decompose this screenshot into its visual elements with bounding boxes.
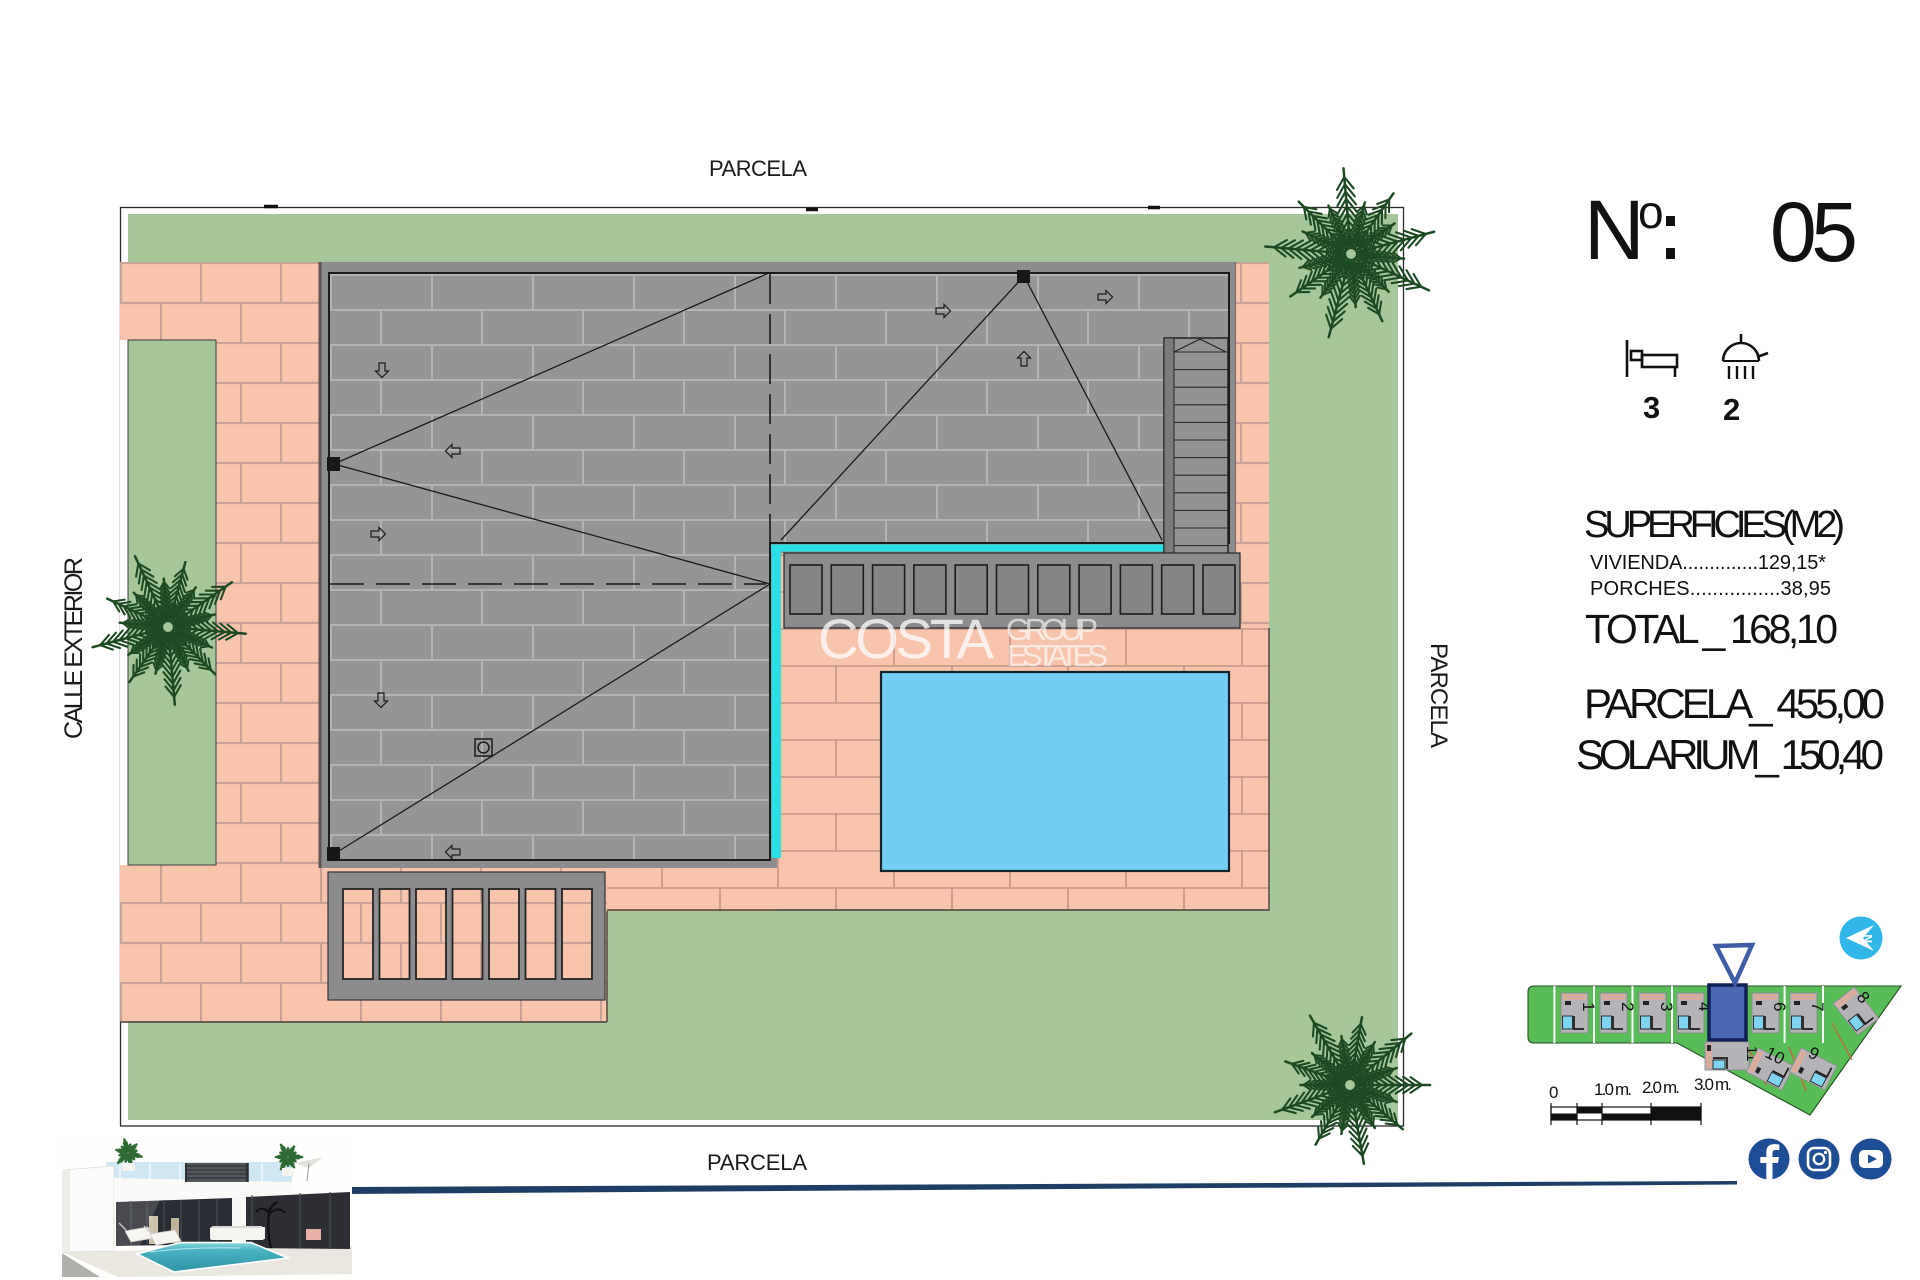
svg-text:ESTATES: ESTATES — [1007, 638, 1110, 673]
svg-text:PARCELA: PARCELA — [1425, 643, 1452, 748]
svg-text:CALLE EXTERIOR: CALLE EXTERIOR — [60, 557, 88, 739]
svg-text:SOLARIUM_ 150,40: SOLARIUM_ 150,40 — [1576, 731, 1884, 778]
svg-text:o: o — [1638, 186, 1664, 238]
svg-text:0: 0 — [1549, 1083, 1558, 1102]
svg-text:05: 05 — [1770, 185, 1858, 279]
svg-text:2: 2 — [1618, 1002, 1637, 1011]
svg-text:2: 2 — [1723, 392, 1740, 427]
svg-text:PARCELA_ 455,00: PARCELA_ 455,00 — [1584, 680, 1885, 727]
svg-text:N: N — [1584, 183, 1645, 277]
svg-text:3.0 m.: 3.0 m. — [1694, 1075, 1732, 1094]
svg-text:3: 3 — [1657, 1002, 1676, 1011]
svg-text:PORCHES................38,95: PORCHES................38,95 — [1590, 578, 1831, 600]
svg-text:PARCELA: PARCELA — [707, 1150, 807, 1175]
svg-text:6: 6 — [1770, 1002, 1789, 1011]
svg-text:COSTA: COSTA — [818, 607, 998, 670]
svg-text:1.0 m.: 1.0 m. — [1594, 1080, 1632, 1099]
svg-text:SUPERFICIES(M2): SUPERFICIES(M2) — [1584, 504, 1845, 546]
svg-text:3: 3 — [1643, 390, 1660, 425]
svg-text:1: 1 — [1579, 1002, 1598, 1011]
svg-text:N: N — [1861, 934, 1875, 943]
svg-text:PARCELA: PARCELA — [709, 156, 807, 181]
svg-text:7: 7 — [1808, 1002, 1827, 1011]
svg-text:TOTAL _ 168,10: TOTAL _ 168,10 — [1585, 606, 1838, 652]
svg-text:2.0 m.: 2.0 m. — [1642, 1078, 1680, 1097]
svg-text:VIVIENDA..............129,15*: VIVIENDA..............129,15* — [1590, 552, 1826, 574]
